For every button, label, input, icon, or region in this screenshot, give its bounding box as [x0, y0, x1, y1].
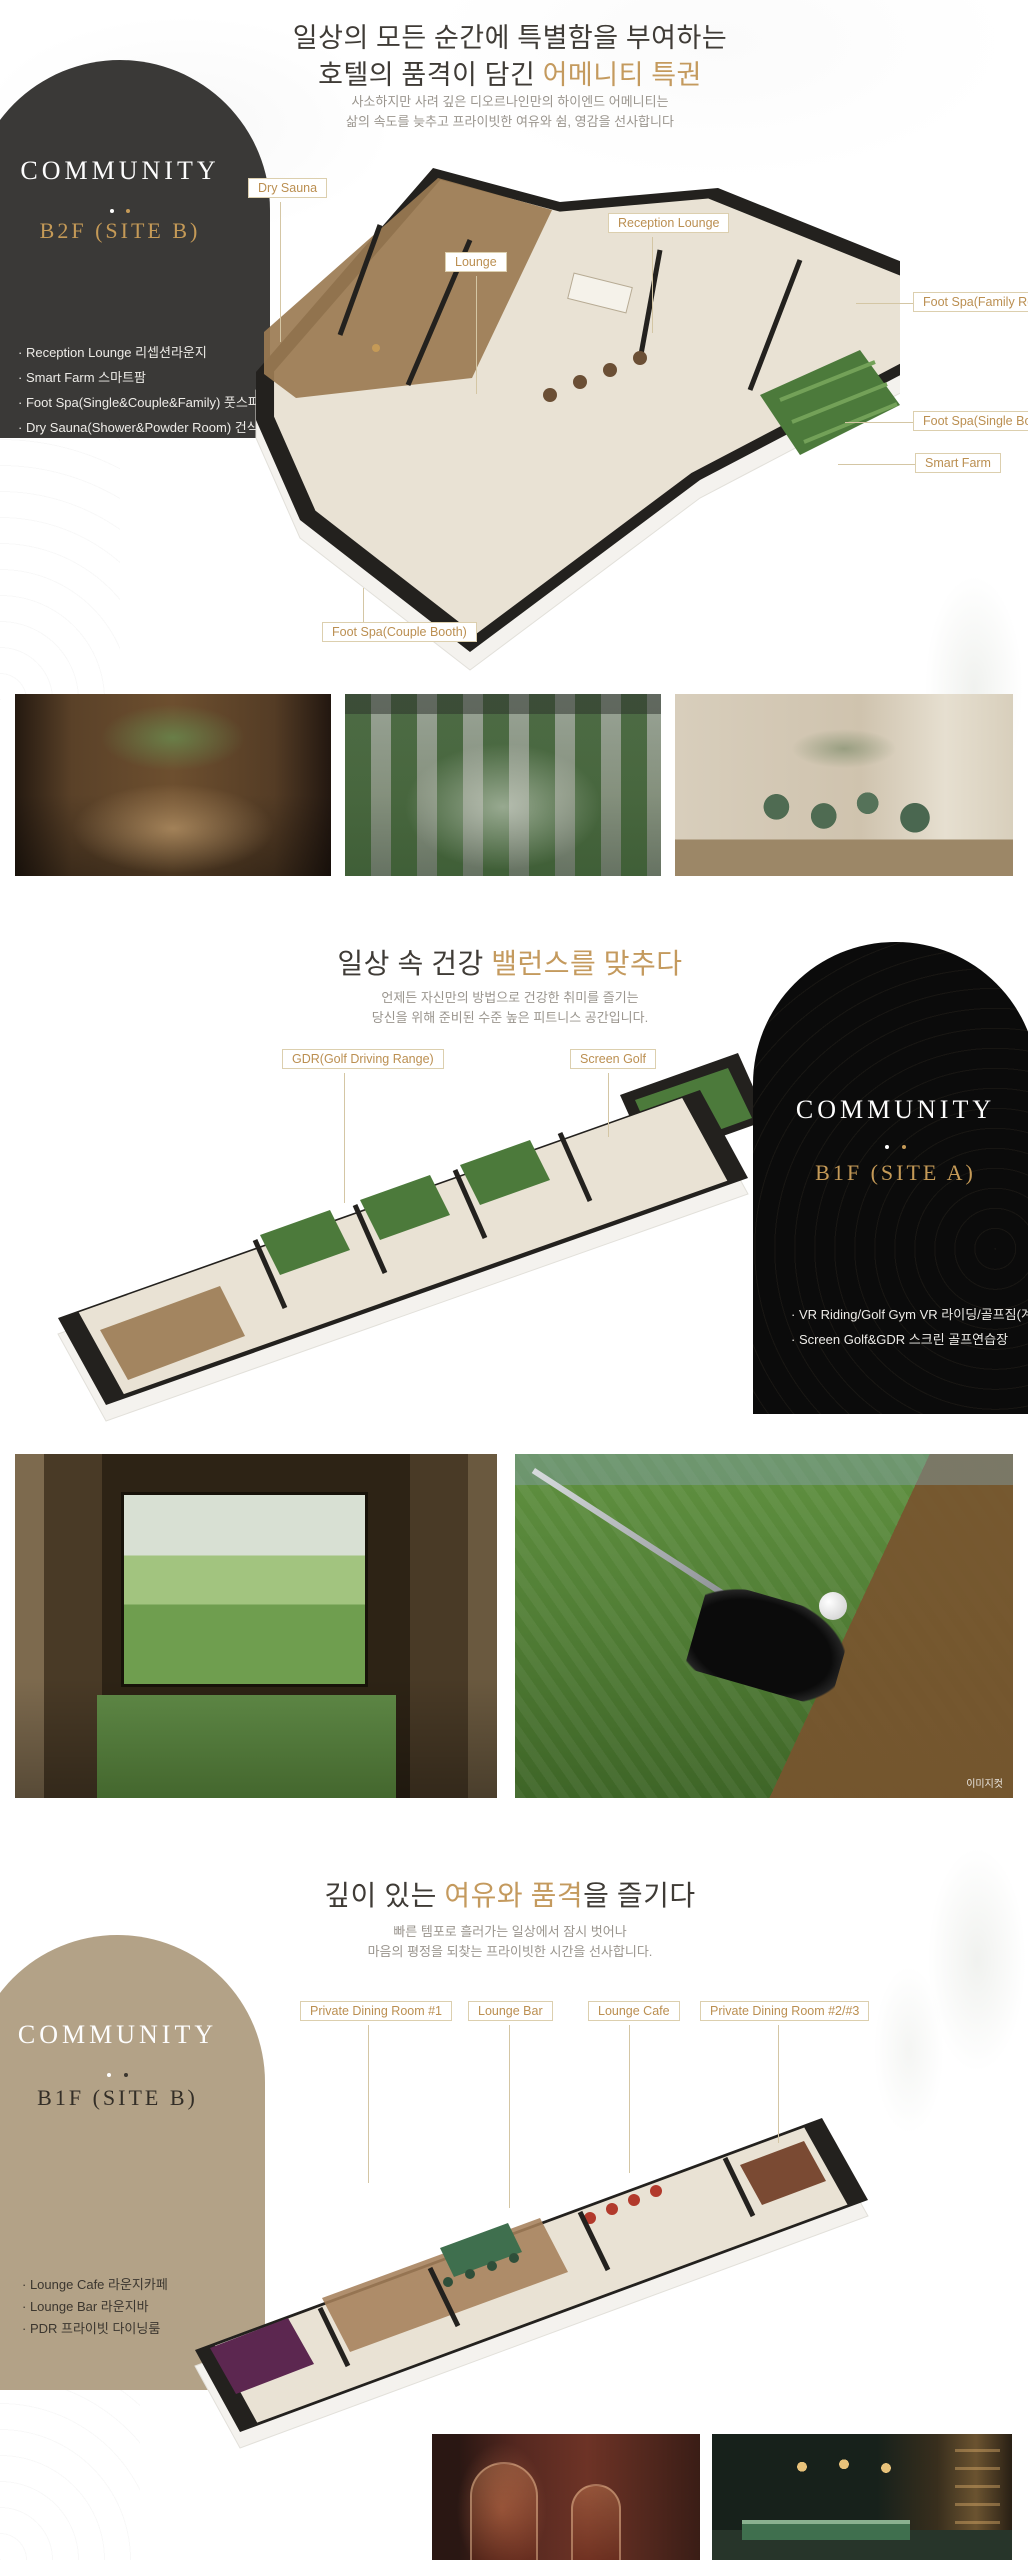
plan-label-smart-farm: Smart Farm [915, 453, 1001, 473]
golf-sim-screen [121, 1492, 368, 1687]
leader-dry-sauna [280, 202, 281, 342]
floor-plan-b1f-b [110, 2060, 900, 2460]
plan-label-screen-golf: Screen Golf [570, 1049, 656, 1069]
photo-golf-club-closeup: 이미지컷 [515, 1454, 1013, 1798]
badge-b1f-a-dots [753, 1138, 1028, 1156]
section3-subheading-line1: 빠른 템포로 흘러가는 일상에서 잠시 벗어나 [160, 1922, 860, 1942]
plan-label-pdr1: Private Dining Room #1 [300, 2001, 452, 2021]
plan-label-foot-spa-single: Foot Spa(Single Booth) [913, 411, 1028, 431]
photo-caption: 이미지컷 [966, 1775, 1003, 1790]
section3-heading-accent: 여유와 품격 [444, 1881, 583, 1912]
photo-screen-golf-room [15, 1454, 497, 1798]
photo-lounge-bar [712, 2434, 1012, 2560]
dot-gold [902, 1145, 906, 1149]
plan-label-gdr: GDR(Golf Driving Range) [282, 1049, 444, 1069]
section2-heading-prefix: 일상 속 건강 [337, 949, 491, 980]
golf-club-shaft [532, 1468, 736, 1603]
golf-sim-turf [97, 1695, 396, 1798]
plan-label-reception-lounge: Reception Lounge [608, 213, 729, 233]
section1-subheading-line1: 사소하지만 사려 깊은 디오르나인만의 하이엔드 어메니티는 [170, 92, 850, 112]
leader-gdr [344, 1073, 345, 1203]
floor-plan-b2f [140, 130, 900, 690]
photo-private-dining [432, 2434, 700, 2560]
plan-label-lounge-bar: Lounge Bar [468, 2001, 553, 2021]
plan-label-foot-spa-family: Foot Spa(Family Room) [913, 292, 1028, 312]
photo-foot-spa [15, 694, 331, 876]
photo-reception-lounge [675, 694, 1013, 876]
plan-label-foot-spa-couple: Foot Spa(Couple Booth) [322, 622, 477, 642]
leader-screen-golf [608, 1073, 609, 1137]
badge-b1f-a-floor: B1F (SITE A) [753, 1160, 1028, 1186]
dot-gold [126, 209, 130, 213]
section3-heading-suffix: 을 즐기다 [583, 1881, 696, 1912]
section3-heading-prefix: 깊이 있는 [324, 1881, 444, 1912]
leader-lounge-cafe [629, 2025, 630, 2173]
plan-label-lounge-cafe: Lounge Cafe [588, 2001, 680, 2021]
golf-ball [819, 1592, 847, 1620]
plan-label-lounge: Lounge [445, 252, 507, 272]
pdr-arch-right [571, 2484, 621, 2560]
badge-b1f-a-title: COMMUNITY [753, 1095, 1028, 1125]
leader-reception-lounge [652, 237, 653, 333]
section1-heading-line2: 호텔의 품격이 담긴 어메니티 특권 [170, 57, 850, 94]
plan-label-dry-sauna: Dry Sauna [248, 178, 327, 198]
section1-heading-line2-accent: 어메니티 특권 [543, 60, 702, 90]
leader-pdr1 [368, 2025, 369, 2183]
bar-counter [742, 2520, 910, 2540]
section1-subheading: 사소하지만 사려 깊은 디오르나인만의 하이엔드 어메니티는 삶의 속도를 늦추… [170, 92, 850, 132]
floor-plan-b1f-a [20, 1040, 790, 1440]
community-amenity-page: 일상의 모든 순간에 특별함을 부여하는 호텔의 품격이 담긴 어메니티 특권 … [0, 0, 1028, 2560]
section1-heading: 일상의 모든 순간에 특별함을 부여하는 호텔의 품격이 담긴 어메니티 특권 [170, 20, 850, 94]
section1-subheading-line2: 삶의 속도를 늦추고 프라이빗한 여유와 쉼, 영감을 선사합니다 [170, 112, 850, 132]
leader-pdr23 [778, 2025, 779, 2143]
badge-b1f-b-title: COMMUNITY [0, 2020, 265, 2050]
leader-lounge [476, 276, 477, 394]
dot-white [885, 1145, 889, 1149]
section2-heading-accent: 밸런스를 맞추다 [491, 949, 682, 980]
leader-foot-spa-couple [363, 588, 364, 622]
badge-b1f-a-item: VR Riding/Golf Gym VR 라이딩/골프짐(계획) [791, 1302, 1028, 1327]
wine-shelf [955, 2449, 1000, 2525]
leader-foot-spa-single [845, 422, 913, 423]
dot-white [110, 209, 114, 213]
plan-label-pdr23: Private Dining Room #2/#3 [700, 2001, 869, 2021]
pdr-arch-left [470, 2462, 538, 2560]
section3-heading-line: 깊이 있는 여유와 품격을 즐기다 [160, 1878, 860, 1915]
leader-lounge-bar [509, 2025, 510, 2208]
section3-subheading: 빠른 템포로 흘러가는 일상에서 잠시 벗어나 마음의 평정을 되찾는 프라이빗… [160, 1922, 860, 1962]
section1-heading-line2-prefix: 호텔의 품격이 담긴 [318, 60, 542, 90]
leader-foot-spa-family [856, 303, 913, 304]
section3-subheading-line2: 마음의 평정을 되찾는 프라이빗한 시간을 선사합니다. [160, 1942, 860, 1962]
leader-smart-farm [838, 464, 915, 465]
section3-heading: 깊이 있는 여유와 품격을 즐기다 [160, 1878, 860, 1915]
section1-heading-line1: 일상의 모든 순간에 특별함을 부여하는 [170, 20, 850, 57]
badge-b1f-site-a: COMMUNITY B1F (SITE A) VR Riding/Golf Gy… [753, 942, 1028, 1414]
photo-smart-farm [345, 694, 661, 876]
badge-b1f-a-item-list: VR Riding/Golf Gym VR 라이딩/골프짐(계획) Screen… [791, 1302, 1028, 1352]
badge-b1f-a-item: Screen Golf&GDR 스크린 골프연습장 [791, 1327, 1028, 1352]
